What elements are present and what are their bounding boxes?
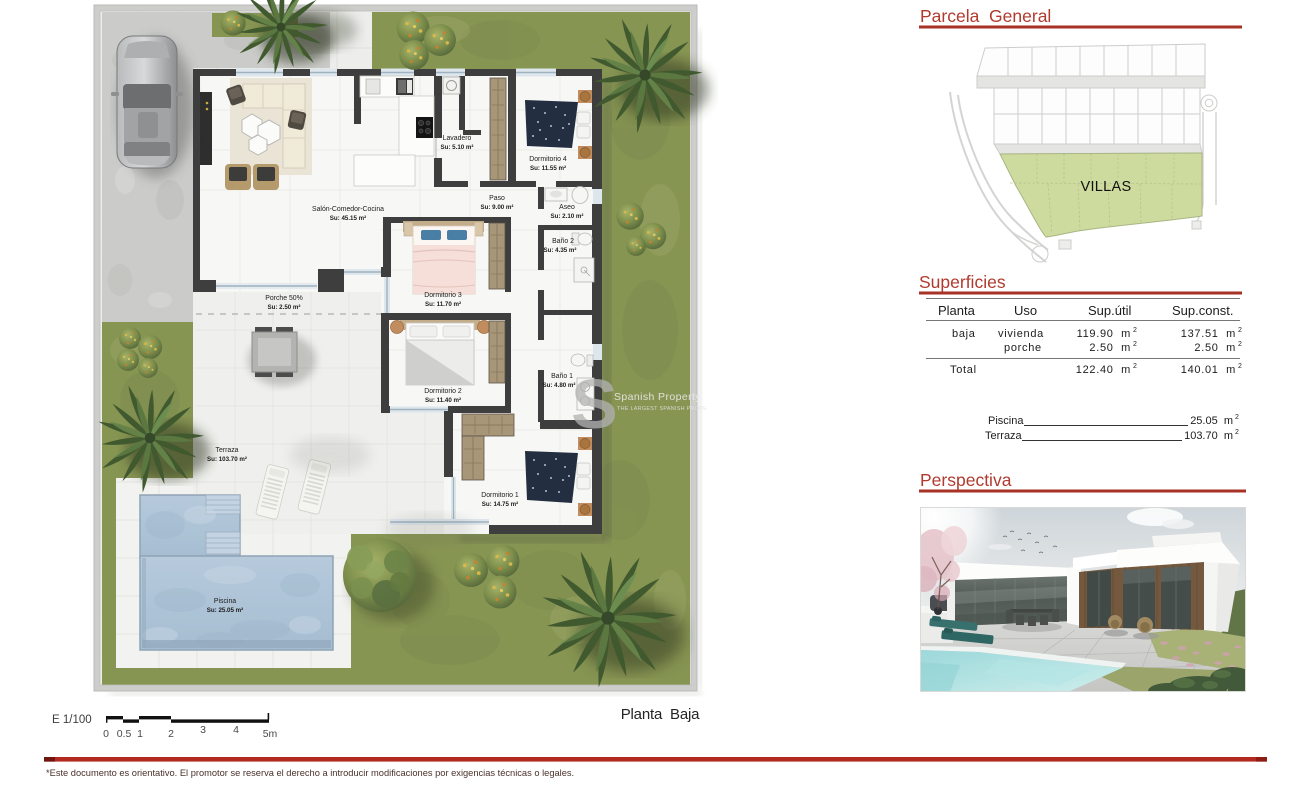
svg-text:2: 2 <box>1238 363 1243 370</box>
svg-text:140.01 m: 140.01 m <box>1181 364 1236 376</box>
svg-text:Su: 45.15 m²: Su: 45.15 m² <box>330 215 366 222</box>
svg-text:103.70 m: 103.70 m <box>1184 430 1233 442</box>
svg-text:2: 2 <box>1238 341 1243 348</box>
svg-text:Su: 5.10 m²: Su: 5.10 m² <box>440 144 473 151</box>
svg-text:5m: 5m <box>263 728 278 740</box>
svg-text:Su: 14.75 m²: Su: 14.75 m² <box>482 501 518 508</box>
svg-text:baja: baja <box>952 328 976 340</box>
svg-text:Su: 103.70 m²: Su: 103.70 m² <box>207 456 247 463</box>
svg-text:2: 2 <box>1133 341 1138 348</box>
svg-text:Su: 2.50 m²: Su: 2.50 m² <box>267 304 300 311</box>
svg-text:Spanish Property: Spanish Property <box>614 391 701 403</box>
svg-text:Dormitorio 3: Dormitorio 3 <box>424 292 462 299</box>
svg-text:Piscina: Piscina <box>988 415 1024 427</box>
svg-text:Terraza: Terraza <box>985 430 1023 442</box>
svg-text:0: 0 <box>103 728 109 740</box>
svg-text:Uso: Uso <box>1014 303 1037 318</box>
svg-text:2: 2 <box>1238 327 1243 334</box>
svg-text:1: 1 <box>137 728 143 740</box>
svg-text:2: 2 <box>1133 327 1138 334</box>
svg-text:2: 2 <box>1235 429 1239 436</box>
svg-text:2: 2 <box>1133 363 1138 370</box>
svg-text:Su: 11.70 m²: Su: 11.70 m² <box>425 301 461 308</box>
svg-text:vivienda: vivienda <box>998 328 1044 340</box>
svg-text:Dormitorio 4: Dormitorio 4 <box>529 156 567 163</box>
svg-text:2.50 m: 2.50 m <box>1089 342 1131 354</box>
svg-text:Sup.const.: Sup.const. <box>1172 303 1233 318</box>
svg-text:Piscina: Piscina <box>214 598 236 605</box>
svg-text:porche: porche <box>1004 342 1042 354</box>
svg-text:Baño 1: Baño 1 <box>551 373 573 380</box>
svg-text:4: 4 <box>233 724 239 736</box>
svg-text:E 1/100: E 1/100 <box>52 714 92 726</box>
svg-text:Planta Baja: Planta Baja <box>621 706 700 723</box>
svg-text:Paso: Paso <box>489 195 505 202</box>
svg-text:Su: 9.00 m²: Su: 9.00 m² <box>480 204 513 211</box>
svg-text:0.5: 0.5 <box>117 728 132 740</box>
svg-text:25.05 m: 25.05 m <box>1190 415 1233 427</box>
svg-text:2: 2 <box>168 728 174 740</box>
svg-text:Total: Total <box>950 364 977 376</box>
svg-text:Perspectiva: Perspectiva <box>920 470 1012 490</box>
svg-text:Superficies: Superficies <box>919 272 1006 292</box>
svg-text:Porche 50%: Porche 50% <box>265 295 303 302</box>
svg-text:Su: 11.40 m²: Su: 11.40 m² <box>425 397 461 404</box>
svg-text:137.51 m: 137.51 m <box>1181 328 1236 340</box>
svg-text:Su: 4.35 m²: Su: 4.35 m² <box>543 247 576 254</box>
svg-text:*Este documento es orientativo: *Este documento es orientativo. El promo… <box>46 768 574 778</box>
svg-text:Lavadero: Lavadero <box>443 135 472 142</box>
svg-text:122.40 m: 122.40 m <box>1076 364 1131 376</box>
svg-text:Sup.útil: Sup.útil <box>1088 303 1131 318</box>
svg-text:Aseo: Aseo <box>559 204 575 211</box>
svg-text:Su: 25.05 m²: Su: 25.05 m² <box>207 607 243 614</box>
svg-text:Parcela General: Parcela General <box>920 6 1051 26</box>
svg-text:3: 3 <box>200 724 206 736</box>
svg-text:Planta: Planta <box>938 303 976 318</box>
svg-text:2.50 m: 2.50 m <box>1194 342 1236 354</box>
svg-text:THE LARGEST SPANISH PROPE: THE LARGEST SPANISH PROPE <box>617 406 707 412</box>
svg-text:Su: 2.10 m²: Su: 2.10 m² <box>550 213 583 220</box>
svg-text:Salón-Comedor-Cocina: Salón-Comedor-Cocina <box>312 206 384 213</box>
svg-text:Dormitorio 1: Dormitorio 1 <box>481 492 519 499</box>
svg-text:S: S <box>571 365 618 443</box>
svg-text:119.90 m: 119.90 m <box>1077 328 1131 340</box>
svg-text:Su: 11.55 m²: Su: 11.55 m² <box>530 165 566 172</box>
svg-text:2: 2 <box>1235 414 1239 421</box>
svg-text:Baño 2: Baño 2 <box>552 238 574 245</box>
svg-text:Dormitorio 2: Dormitorio 2 <box>424 388 462 395</box>
svg-text:Terraza: Terraza <box>216 447 239 454</box>
svg-text:VILLAS: VILLAS <box>1081 179 1132 195</box>
